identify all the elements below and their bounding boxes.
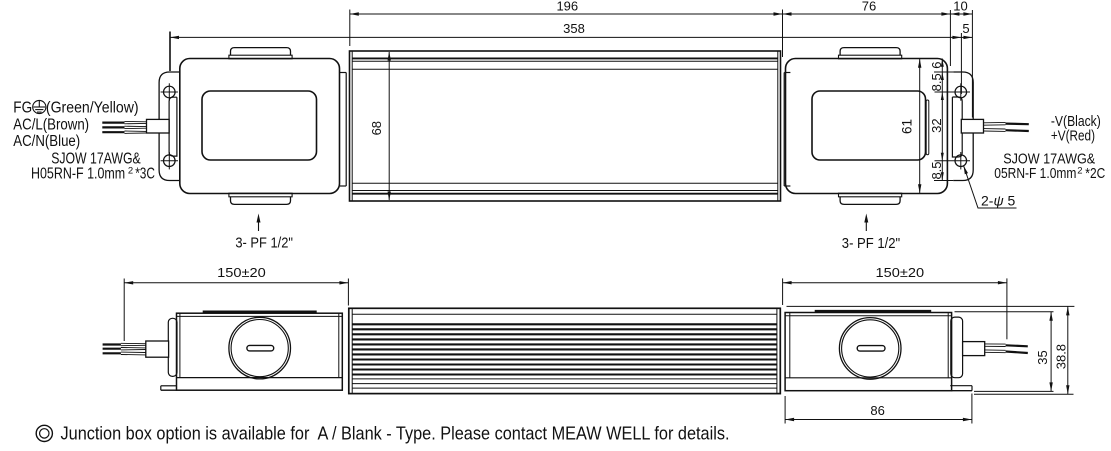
svg-text:3- PF 1/2": 3- PF 1/2" [235, 236, 293, 252]
svg-text:150±20: 150±20 [217, 265, 266, 280]
svg-text:61: 61 [900, 119, 915, 134]
svg-text:38.8: 38.8 [1053, 344, 1068, 369]
svg-text:Junction box option is availab: Junction box option is available for A /… [61, 422, 730, 443]
svg-text:+V(Red): +V(Red) [1051, 128, 1095, 144]
svg-text:FG: FG [13, 100, 32, 117]
svg-text:32: 32 [929, 118, 944, 132]
svg-text:8.5: 8.5 [929, 73, 944, 91]
svg-text:05RN-F 1.0mm: 05RN-F 1.0mm [994, 166, 1076, 182]
svg-text:5: 5 [962, 21, 969, 36]
svg-text:196: 196 [556, 0, 578, 13]
svg-text:AC/L(Brown): AC/L(Brown) [13, 116, 89, 133]
svg-text:86: 86 [870, 403, 884, 418]
svg-text:*2C: *2C [1085, 166, 1105, 182]
svg-text:10: 10 [953, 0, 967, 13]
svg-text:150±20: 150±20 [876, 265, 925, 280]
svg-text:H05RN-F 1.0mm: H05RN-F 1.0mm [31, 166, 125, 183]
svg-text:76: 76 [862, 0, 876, 13]
svg-text:68: 68 [369, 121, 384, 135]
svg-text:(Green/Yellow): (Green/Yellow) [46, 100, 139, 117]
svg-text:2-ψ 5: 2-ψ 5 [981, 193, 1016, 209]
svg-text:6: 6 [929, 61, 944, 68]
svg-text:*3C: *3C [135, 166, 155, 183]
svg-text:2: 2 [1077, 165, 1082, 176]
svg-text:2: 2 [128, 166, 133, 177]
svg-text:358: 358 [563, 21, 585, 36]
svg-text:8.5: 8.5 [929, 161, 944, 179]
svg-text:AC/N(Blue): AC/N(Blue) [13, 133, 80, 150]
svg-text:3- PF 1/2": 3- PF 1/2" [842, 236, 900, 252]
svg-text:35: 35 [1035, 350, 1050, 364]
